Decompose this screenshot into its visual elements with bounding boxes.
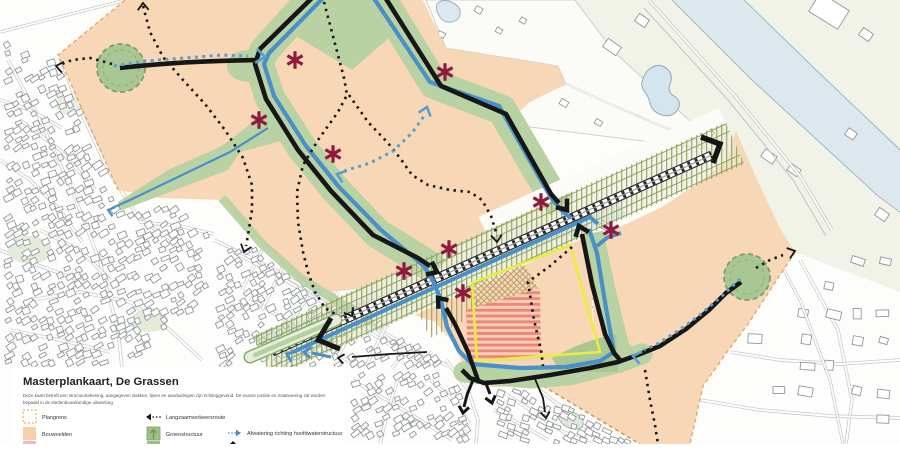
svg-text:Afwatering richting hoofdwater: Afwatering richting hoofdwaterstructuur	[247, 431, 343, 437]
svg-text:Langzaamverkeersroute: Langzaamverkeersroute	[166, 415, 225, 421]
svg-text:Groenstructuur: Groenstructuur	[166, 432, 203, 438]
svg-text:Bouwvelden: Bouwvelden	[42, 432, 72, 438]
svg-text:Plangrens: Plangrens	[42, 415, 67, 421]
svg-text:Deze kaart betreft een structu: Deze kaart betreft een structuurtekening…	[23, 393, 326, 398]
svg-text:bepaald in de stedenbouwkundig: bepaald in de stedenbouwkundige uitwerki…	[23, 400, 113, 405]
svg-text:Masterplankaart, De Grassen: Masterplankaart, De Grassen	[23, 376, 179, 388]
